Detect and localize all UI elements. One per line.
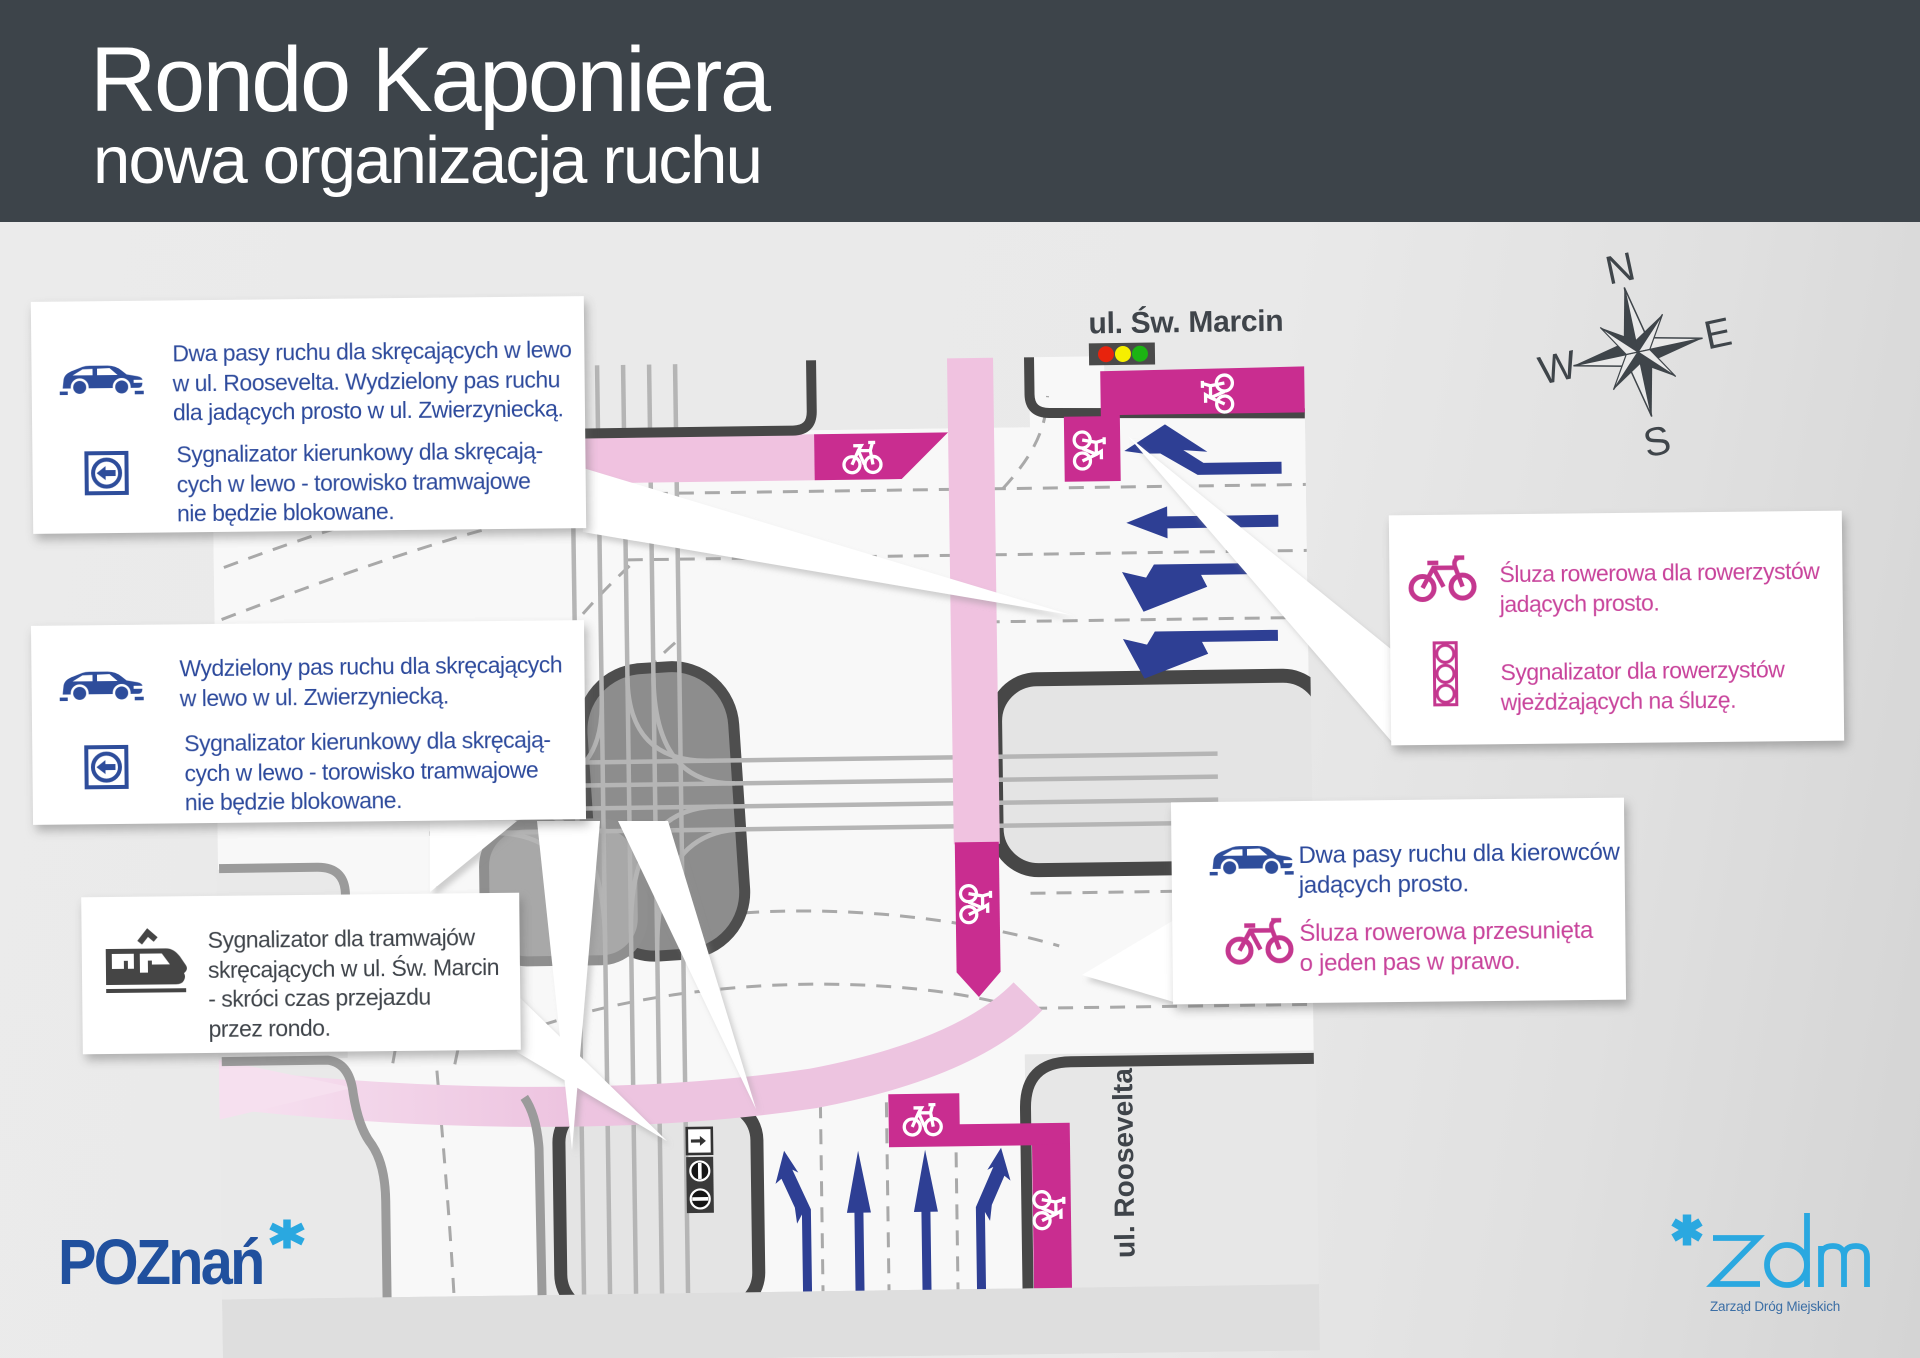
- svg-text:ul. Św. Marcin: ul. Św. Marcin: [1088, 304, 1283, 341]
- svg-text:W: W: [1535, 343, 1581, 394]
- svg-text:E: E: [1700, 310, 1735, 359]
- svg-text:S: S: [1640, 418, 1675, 467]
- svg-text:ul. Roosevelta: ul. Roosevelta: [1107, 1068, 1141, 1259]
- svg-text:Zarząd Dróg Miejskich: Zarząd Dróg Miejskich: [1710, 1299, 1840, 1314]
- svg-text:N: N: [1602, 244, 1639, 293]
